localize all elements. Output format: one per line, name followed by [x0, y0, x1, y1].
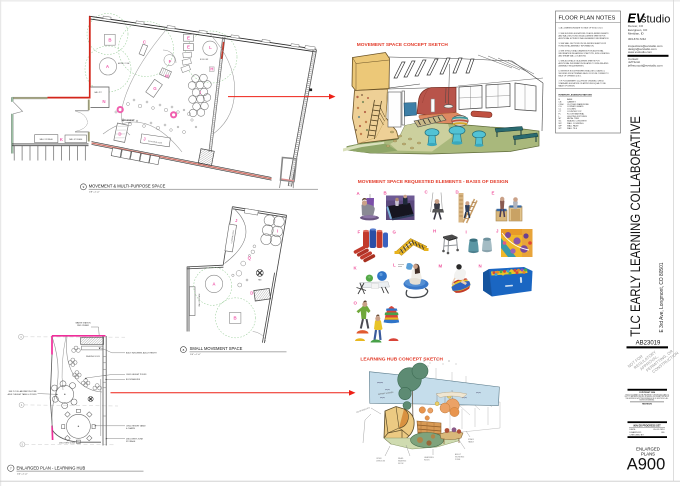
- svg-text:DATE:: DATE:: [630, 428, 637, 431]
- svg-text:N: N: [479, 264, 482, 269]
- svg-text:WALL STORAGE: WALL STORAGE: [69, 138, 83, 141]
- svg-text:H: H: [433, 229, 436, 234]
- svg-text:LEARNING HUB CONCEPT SKETCH: LEARNING HUB CONCEPT SKETCH: [360, 357, 443, 363]
- svg-text:BALL PIT: BALL PIT: [95, 91, 102, 94]
- svg-text:CHILD HEIGHT TABLE: CHILD HEIGHT TABLE: [126, 425, 146, 428]
- svg-text:MOVEMENT SPACE REQUESTED ELEME: MOVEMENT SPACE REQUESTED ELEMENTS - BASI…: [358, 179, 509, 185]
- svg-text:REVISION: REVISION: [642, 404, 652, 406]
- svg-text:AND SHEAR WALL LOCATIONS.: AND SHEAR WALL LOCATIONS.: [559, 54, 587, 57]
- svg-text:I: I: [466, 230, 467, 235]
- svg-text:MOVEMENT & MULTI-PURPOSE SPACE: MOVEMENT & MULTI-PURPOSE SPACE: [89, 183, 166, 188]
- svg-text:B: B: [384, 191, 387, 196]
- svg-text:RUGS: RUGS: [424, 460, 430, 462]
- svg-text:ENLARGED PLAN - LEARNING HUB: ENLARGED PLAN - LEARNING HUB: [17, 465, 86, 470]
- svg-text:STORAGE: STORAGE: [126, 440, 136, 443]
- svg-text:RS: RS: [661, 432, 665, 434]
- svg-text:90% DD PROGRESS SET: 90% DD PROGRESS SET: [633, 425, 661, 427]
- svg-text:WALL STORAGE: WALL STORAGE: [40, 138, 54, 141]
- svg-text:FACE OF OPENING U.N.O.: FACE OF OPENING U.N.O.: [559, 74, 583, 77]
- svg-text:D: D: [456, 190, 459, 195]
- svg-text:AERIAL YOGA: AERIAL YOGA: [118, 62, 130, 65]
- svg-text:1/4" = 1'-0": 1/4" = 1'-0": [190, 354, 201, 356]
- svg-text:TABLE: TABLE: [468, 441, 475, 444]
- svg-text:BOOKSHELVES: BOOKSHELVES: [126, 379, 141, 381]
- svg-text:MULTI COLLABORATION ZONE: MULTI COLLABORATION ZONE: [9, 390, 38, 393]
- svg-text:05-24-2024: 05-24-2024: [653, 429, 665, 431]
- svg-text:M: M: [439, 264, 443, 269]
- svg-text:READING NOOK: READING NOOK: [86, 355, 101, 358]
- svg-text:A900: A900: [627, 456, 666, 474]
- svg-text:D: D: [118, 132, 121, 137]
- svg-text:ADULT HEIGHT TABLE & POUFS: ADULT HEIGHT TABLE & POUFS: [8, 393, 38, 396]
- svg-text:SMALL MOVEMENT SPACE: SMALL MOVEMENT SPACE: [190, 346, 243, 351]
- svg-text:ASSEMBLY REQUIREMENTS.: ASSEMBLY REQUIREMENTS.: [559, 64, 585, 67]
- svg-text:303-670-7242: 303-670-7242: [628, 37, 646, 41]
- svg-text:B: B: [108, 38, 111, 43]
- svg-text:B: B: [234, 316, 237, 321]
- svg-text:BOULDER: BOULDER: [200, 59, 209, 61]
- svg-text:studio: studio: [641, 14, 670, 26]
- svg-text:F: F: [358, 230, 361, 235]
- svg-text:HORIZONTAL ASSEMBLY INFORMATIO: HORIZONTAL ASSEMBLY INFORMATION.: [559, 44, 595, 47]
- svg-text:1/4" = 1'-0": 1/4" = 1'-0": [17, 473, 28, 475]
- svg-text:G: G: [393, 230, 397, 235]
- svg-text:TLC EARLY LEARNING COLLABORATI: TLC EARLY LEARNING COLLABORATIVE: [628, 116, 643, 337]
- svg-text:D: D: [250, 291, 253, 296]
- svg-text:WALL TILE: WALL TILE: [567, 127, 578, 130]
- svg-text:www.evstudio.com: www.evstudio.com: [628, 50, 653, 54]
- svg-text:135: 135: [128, 123, 131, 125]
- svg-text:E: E: [187, 35, 190, 40]
- svg-text:& CHAIRS: & CHAIRS: [126, 427, 136, 430]
- svg-text:jeffrey.scott@evstudio.com: jeffrey.scott@evstudio.com: [627, 63, 663, 67]
- svg-text:E: E: [187, 45, 190, 50]
- svg-text:1/8" = 1'-0": 1/8" = 1'-0": [89, 192, 100, 194]
- svg-text:I: I: [200, 90, 201, 95]
- svg-text:L: L: [393, 263, 396, 268]
- svg-text:MOVEMENT SPACE CONCEPT SKETCH: MOVEMENT SPACE CONCEPT SKETCH: [357, 42, 449, 48]
- svg-text:N: N: [102, 99, 105, 104]
- svg-text:I: I: [277, 228, 278, 233]
- svg-text:MADE OF DESIGN.: MADE OF DESIGN.: [559, 84, 576, 87]
- svg-text:AB23019: AB23019: [636, 341, 661, 347]
- svg-text:ADDITIONAL EXTERIOR WALL ASSEM: ADDITIONAL EXTERIOR WALL ASSEMBLY INFORM…: [559, 37, 610, 40]
- svg-text:H: H: [210, 67, 213, 72]
- svg-text:M: M: [165, 74, 169, 79]
- svg-text:NOOK: NOOK: [398, 463, 404, 465]
- svg-text:Meridian, ID: Meridian, ID: [628, 31, 644, 35]
- svg-text:RIGHTS RESERVED.: RIGHTS RESERVED.: [639, 400, 655, 402]
- svg-text:BUILT IN/SCREEN, ADULT HEIGHT: BUILT IN/SCREEN, ADULT HEIGHT: [126, 352, 157, 355]
- svg-text:CHILD HEIGHT POUFS: CHILD HEIGHT POUFS: [126, 374, 147, 376]
- svg-text:CHECK IN: CHECK IN: [376, 461, 386, 463]
- svg-text:FLOOR PLAN NOTES: FLOOR PLAN NOTES: [559, 16, 616, 22]
- svg-text:E 3rd Ave, Longmont, CO 80501: E 3rd Ave, Longmont, CO 80501: [659, 262, 665, 332]
- svg-text:F: F: [169, 59, 172, 64]
- svg-text:G: G: [153, 86, 157, 91]
- svg-text:O: O: [354, 301, 358, 306]
- svg-text:ZONE: ZONE: [455, 459, 461, 461]
- svg-text:DRAWN BY:: DRAWN BY:: [630, 431, 643, 434]
- svg-text:COPYRIGHT 2024: COPYRIGHT 2024: [639, 391, 656, 394]
- svg-text:E: E: [492, 191, 495, 196]
- svg-text:1. ALL DIMENSIONS ARE TO FACE: 1. ALL DIMENSIONS ARE TO FACE OF STUD U.…: [559, 27, 604, 30]
- svg-text:INTERIOR LEGEND/NOTATIONS: INTERIOR LEGEND/NOTATIONS: [559, 94, 593, 97]
- svg-text:DISCOVERY ZONE: DISCOVERY ZONE: [59, 442, 76, 444]
- svg-text:PER OWNER: PER OWNER: [77, 325, 89, 327]
- svg-text:L: L: [209, 45, 212, 50]
